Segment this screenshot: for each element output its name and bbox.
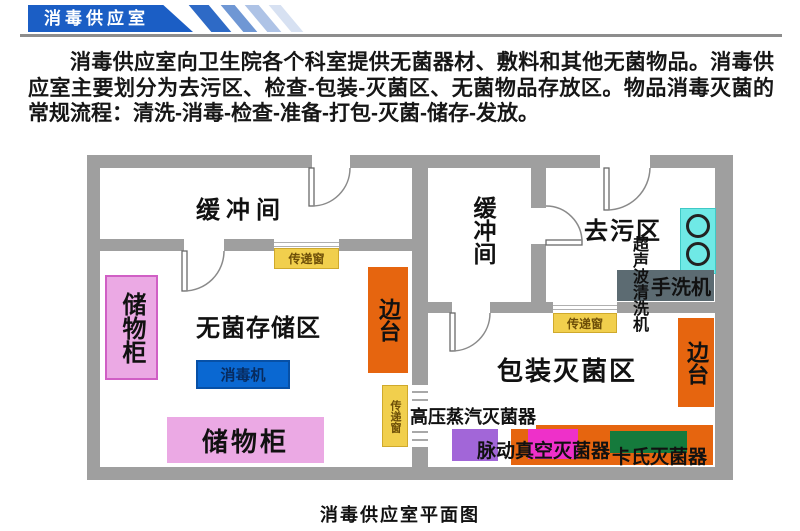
side-table-left: 边台	[368, 267, 408, 373]
steam-sterilizer-label: 高压蒸汽灭菌器	[410, 403, 536, 429]
door-icon	[182, 251, 224, 291]
pass-window-label: 传递窗	[382, 385, 408, 447]
room-label-buffer-left: 缓冲间	[196, 190, 286, 225]
door-icon	[309, 168, 350, 206]
room-label-packing: 包装灭菌区	[497, 351, 637, 388]
sink-unit	[680, 208, 716, 274]
disinfector-machine: 消毒机	[196, 360, 290, 389]
sink-basin-icon	[686, 214, 710, 238]
sink-basin-icon	[686, 242, 710, 266]
storage-cabinet-bottom: 储物柜	[167, 417, 324, 463]
door-icon	[546, 206, 582, 245]
room-label-sterile-storage: 无菌存储区	[196, 308, 321, 343]
room-label-buffer-mid: 缓冲间	[466, 196, 500, 265]
pulse-vacuum-sterilizer-label: 脉动真空灭菌器	[477, 436, 610, 463]
cassette-sterilizer-label: 卡氏灭菌器	[612, 442, 707, 469]
ultrasonic-cleaner-label: 超声波清洗机	[626, 236, 650, 332]
pass-window-label: 传递窗	[553, 313, 617, 333]
door-icon	[604, 168, 650, 210]
page: 消毒供应室 消毒供应室向卫生院各个科室提供无菌器材、敷料和其他无菌物品。消毒供应…	[0, 0, 800, 531]
side-table-right: 边台	[678, 318, 714, 407]
storage-cabinet-left: 储物柜	[105, 275, 158, 380]
pass-window-label: 传递窗	[274, 248, 339, 269]
door-icon	[450, 313, 490, 351]
room-label-decontamination: 去污区	[584, 211, 662, 246]
floor-plan: 缓冲间 缓冲间 去污区 无菌存储区 包装灭菌区 传递窗 传递窗 传递窗 储物柜 …	[0, 0, 800, 531]
